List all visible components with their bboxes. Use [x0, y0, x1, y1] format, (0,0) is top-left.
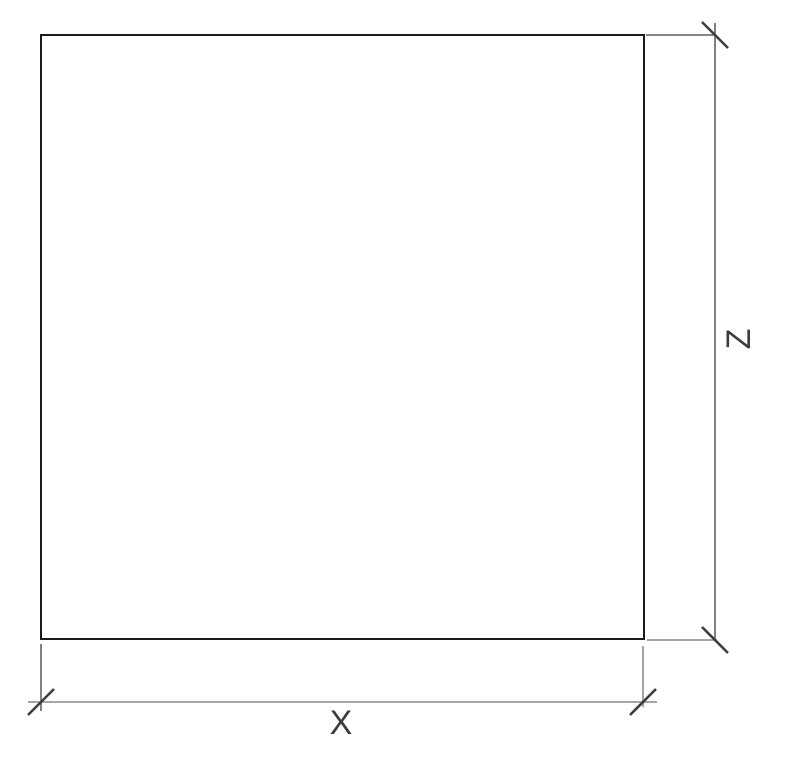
dimension-z: Z: [646, 22, 758, 653]
drawing-page: Z X: [0, 0, 805, 769]
dimension-x: X: [28, 644, 657, 742]
dimension-label-x[interactable]: X: [330, 704, 353, 742]
dimension-label-z[interactable]: Z: [720, 329, 758, 350]
drawing-canvas: Z X: [0, 0, 805, 769]
square-outline[interactable]: [41, 35, 644, 639]
